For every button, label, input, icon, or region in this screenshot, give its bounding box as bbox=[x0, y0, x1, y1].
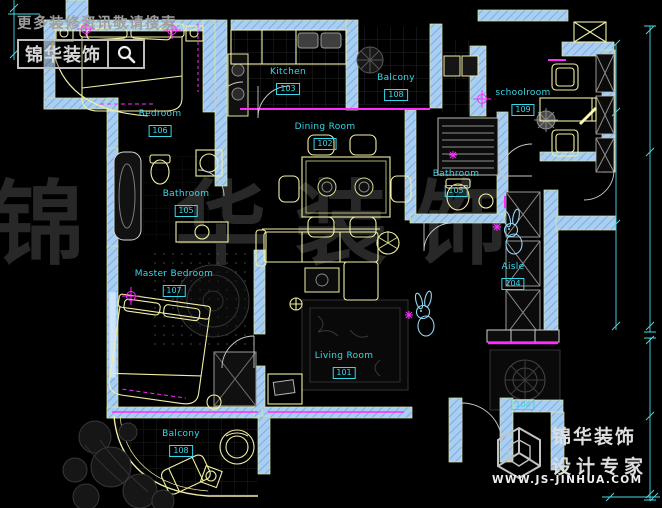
room-name: Balcony bbox=[162, 429, 200, 439]
rabbit-decal-icon bbox=[414, 291, 434, 336]
room-name: Dining Room bbox=[295, 122, 356, 132]
brand-url: WWW.JS-JINHUA.COM bbox=[492, 474, 654, 486]
brand-logo: 锦华装饰 bbox=[17, 39, 145, 69]
room-label-entry-area: 104 bbox=[511, 393, 534, 411]
room-label-kitchen: Kitchen 103 bbox=[270, 67, 306, 96]
room-label-dining-room: Dining Room 102 bbox=[295, 122, 356, 151]
top-left-watermark: 更多装修资讯敬请搜索 锦华装饰 bbox=[17, 12, 177, 69]
room-name: Aisle bbox=[501, 262, 524, 272]
room-number: 108 bbox=[384, 89, 407, 100]
room-name: Kitchen bbox=[270, 67, 306, 77]
room-label-bedroom: Bedroom 106 bbox=[139, 109, 182, 138]
room-label-bathroom-left: Bathroom 105 bbox=[163, 189, 210, 218]
room-name: Bathroom bbox=[433, 169, 480, 179]
room-number: 104 bbox=[501, 278, 524, 289]
room-number: 103 bbox=[276, 83, 299, 94]
room-label-master-bedroom: Master Bedroom 107 bbox=[135, 269, 214, 298]
room-name: Master Bedroom bbox=[135, 269, 214, 279]
room-name: Bedroom bbox=[139, 109, 182, 119]
room-number: 105 bbox=[444, 185, 467, 196]
room-number: 105 bbox=[174, 205, 197, 216]
room-number: 104 bbox=[511, 399, 534, 410]
room-label-living-room: Living Room 101 bbox=[315, 351, 374, 380]
room-label-balcony-top: Balcony 108 bbox=[377, 73, 415, 102]
watermark-tagline: 更多装修资讯敬请搜索 bbox=[17, 12, 177, 33]
cube-logo-icon bbox=[494, 426, 544, 480]
room-number: 109 bbox=[511, 104, 534, 115]
search-icon bbox=[109, 44, 143, 64]
room-name: Living Room bbox=[315, 351, 374, 361]
brand-text-block: 锦华装饰 设计专家 bbox=[552, 422, 648, 479]
room-number: 107 bbox=[162, 285, 185, 296]
room-number: 101 bbox=[332, 367, 355, 378]
room-number: 102 bbox=[313, 138, 336, 149]
room-label-balcony-bottom: Balcony 108 bbox=[162, 429, 200, 458]
brand-name: 锦华装饰 bbox=[19, 41, 107, 67]
room-number: 108 bbox=[169, 445, 192, 456]
room-name: Balcony bbox=[377, 73, 415, 83]
room-label-schoolroom: schoolroom 109 bbox=[495, 88, 550, 117]
room-name: Bathroom bbox=[163, 189, 210, 199]
room-label-bathroom-right: Bathroom 105 bbox=[433, 169, 480, 198]
room-label-aisle: Aisle 104 bbox=[501, 262, 524, 291]
cad-floor-plan-screenshot: 锦 华 装 饰 bbox=[0, 0, 662, 508]
room-name: schoolroom bbox=[495, 88, 550, 98]
room-number: 106 bbox=[148, 125, 171, 136]
brand-name: 锦华装饰 bbox=[552, 422, 648, 449]
